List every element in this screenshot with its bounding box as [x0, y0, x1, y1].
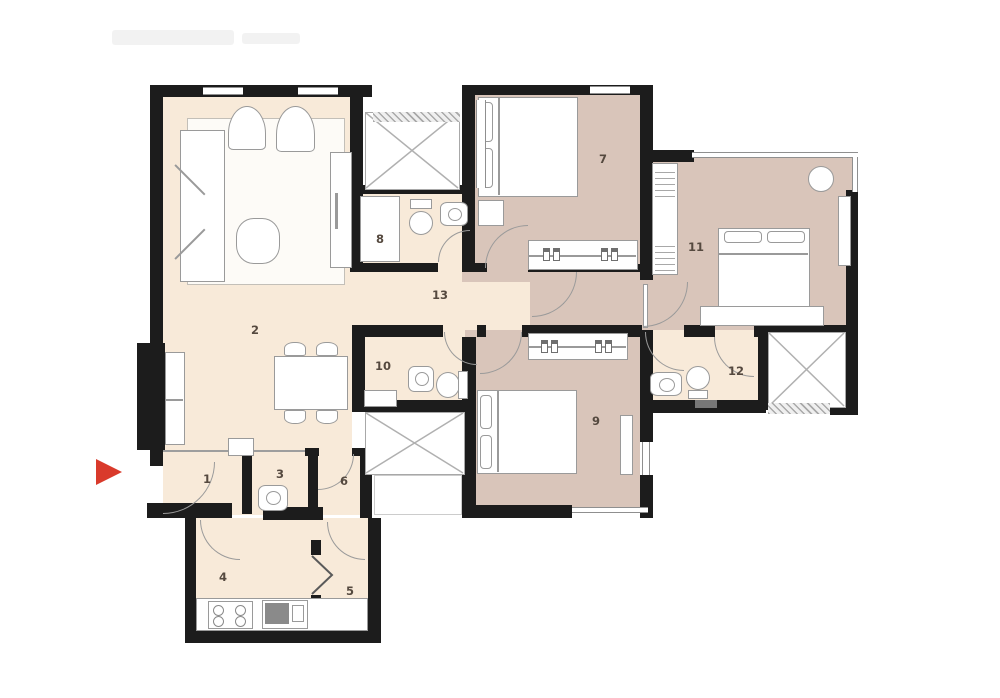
hanger-icon [595, 340, 602, 353]
burner [213, 605, 224, 616]
cross-shaft-icon [366, 113, 458, 188]
wall [242, 452, 252, 514]
wall [150, 450, 163, 466]
shower [360, 196, 400, 262]
window [642, 442, 650, 475]
shaft-top [365, 112, 460, 190]
room-label-1: 1 [203, 472, 211, 486]
wardrobe [528, 333, 628, 360]
wardrobe [652, 163, 678, 275]
sink-bowl [292, 605, 304, 622]
wall [305, 448, 319, 456]
washbasin [408, 366, 434, 392]
tv-unit [330, 152, 352, 268]
kitchen-sink [262, 600, 308, 629]
dining-chair [284, 410, 306, 424]
dining-chair [316, 410, 338, 424]
double-bed [718, 228, 810, 308]
wall [150, 85, 372, 97]
dresser [620, 415, 633, 475]
room-label-9: 9 [592, 414, 600, 428]
room-label-2: 2 [251, 323, 259, 337]
folding-door-icon [312, 556, 336, 596]
room-label-10: 10 [375, 359, 391, 373]
toilet-bowl [409, 211, 433, 235]
burner [235, 616, 246, 627]
sink-drainboard [265, 603, 289, 624]
hanger-icon [605, 340, 612, 353]
wall [253, 450, 308, 452]
sofa [180, 130, 225, 282]
blanket-line [497, 391, 499, 472]
toilet-tank [410, 199, 432, 209]
wardrobe-shelves [655, 167, 675, 197]
room-label-13: 13 [432, 288, 448, 302]
room-label-7: 7 [599, 152, 607, 166]
wall [684, 325, 715, 337]
pillow [767, 231, 805, 243]
pillow [480, 435, 492, 469]
wall [185, 630, 380, 643]
hanger-icon [543, 248, 550, 261]
washbasin [650, 372, 682, 396]
room-label-8: 8 [376, 232, 384, 246]
wall [308, 448, 318, 514]
blanket-line [498, 98, 500, 195]
shaft-right [768, 332, 846, 408]
tv [335, 193, 338, 229]
coffee-table [236, 218, 280, 264]
toilet-tank [458, 371, 468, 399]
shaft-mid [365, 412, 465, 475]
floor-plan: 1 2 3 4 5 6 7 8 9 10 11 12 13 [0, 0, 1000, 698]
room-label-12: 12 [728, 364, 744, 378]
window [852, 157, 858, 192]
wall [462, 505, 572, 518]
foot-bench [700, 306, 824, 326]
dresser [838, 196, 851, 266]
wardrobe-shelves [655, 241, 675, 271]
window [476, 100, 486, 188]
pillow [724, 231, 762, 243]
hob [208, 601, 253, 629]
wall [185, 518, 196, 640]
double-bed [478, 97, 578, 197]
cabinet-line [166, 399, 183, 401]
toilet-bowl [436, 372, 460, 398]
bedside-table [478, 200, 504, 226]
wall [845, 325, 858, 413]
pillow [480, 395, 492, 429]
window [298, 87, 338, 95]
washbasin [258, 485, 288, 511]
hanger-icon [611, 248, 618, 261]
basin-bowl [415, 372, 429, 386]
wall [137, 343, 165, 450]
blanket-line [719, 253, 808, 255]
room-label-3: 3 [276, 467, 284, 481]
basin-bowl [266, 491, 281, 505]
balcony-window [692, 152, 858, 158]
double-bed [477, 390, 577, 474]
room-label-6: 6 [340, 474, 348, 488]
wardrobe [528, 240, 638, 270]
wall [311, 540, 321, 555]
wall [368, 518, 381, 643]
basin-bowl [659, 378, 675, 392]
basin-bowl [448, 208, 462, 221]
wall [150, 85, 163, 343]
window [203, 87, 243, 95]
cross-shaft-icon [769, 333, 844, 406]
burner [213, 616, 224, 627]
dining-chair [284, 342, 306, 356]
room-label-11: 11 [688, 240, 704, 254]
wall [640, 150, 694, 162]
cross-shaft-icon [366, 413, 463, 473]
room-label-4: 4 [219, 570, 227, 584]
entry-arrow-icon [96, 459, 122, 485]
watermark [112, 30, 234, 45]
toilet-bowl [686, 366, 710, 390]
hanger-icon [541, 340, 548, 353]
watermark [242, 33, 300, 44]
dining-table [274, 356, 348, 410]
window [590, 86, 630, 94]
exterior-recess [374, 475, 462, 515]
hanger-icon [601, 248, 608, 261]
toilet-tank [688, 390, 708, 399]
stool [808, 166, 834, 192]
shower [364, 390, 397, 407]
tall-cabinet [165, 352, 185, 445]
hanger-icon [551, 340, 558, 353]
hatch-strip [373, 112, 460, 122]
dining-chair [316, 342, 338, 356]
wall [352, 325, 443, 337]
balcony-window [572, 507, 648, 513]
burner [235, 605, 246, 616]
washbasin [440, 202, 468, 226]
room-label-5: 5 [346, 584, 354, 598]
hanger-icon [553, 248, 560, 261]
threshold [695, 400, 717, 408]
hatch-strip [768, 403, 830, 414]
shoe-cabinet [228, 438, 254, 456]
wall [352, 263, 438, 272]
